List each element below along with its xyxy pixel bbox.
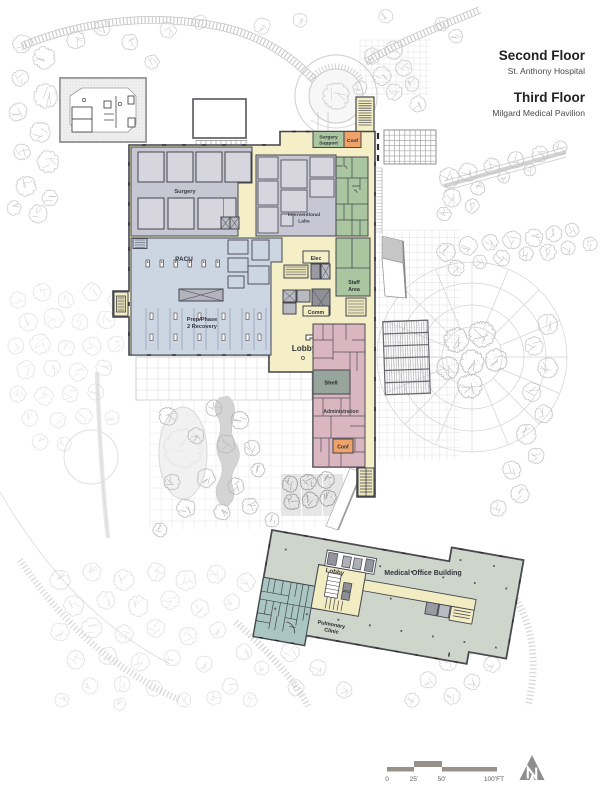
svg-text:50’: 50’ [438,776,447,783]
svg-text:100’FT: 100’FT [484,776,504,783]
svg-text:Administration: Administration [323,409,358,415]
svg-text:Comm: Comm [308,310,325,316]
svg-text:PACU: PACU [175,256,193,263]
svg-text:2 Recovery: 2 Recovery [187,324,218,330]
svg-text:Interventional: Interventional [288,212,321,218]
svg-text:Labs: Labs [298,219,310,225]
svg-text:Milgard Medical Pavilion: Milgard Medical Pavilion [492,108,585,118]
svg-text:Conf: Conf [347,138,359,144]
svg-text:Shell: Shell [324,381,338,387]
svg-text:Prep/Phase: Prep/Phase [187,317,217,323]
svg-text:St. Anthony Hospital: St. Anthony Hospital [508,66,585,76]
svg-text:Surgery: Surgery [319,135,338,141]
svg-text:25’: 25’ [410,776,419,783]
svg-text:Support: Support [319,141,338,147]
svg-text:0: 0 [385,776,389,783]
svg-text:Surgery: Surgery [174,189,196,195]
svg-text:Conf: Conf [337,445,349,451]
svg-text:Area: Area [348,287,360,293]
svg-text:Third Floor: Third Floor [514,90,586,105]
svg-text:Elec: Elec [311,256,322,262]
svg-text:Medical Office Building: Medical Office Building [384,570,461,577]
svg-text:Second Floor: Second Floor [499,48,586,63]
svg-text:Staff: Staff [348,280,360,286]
